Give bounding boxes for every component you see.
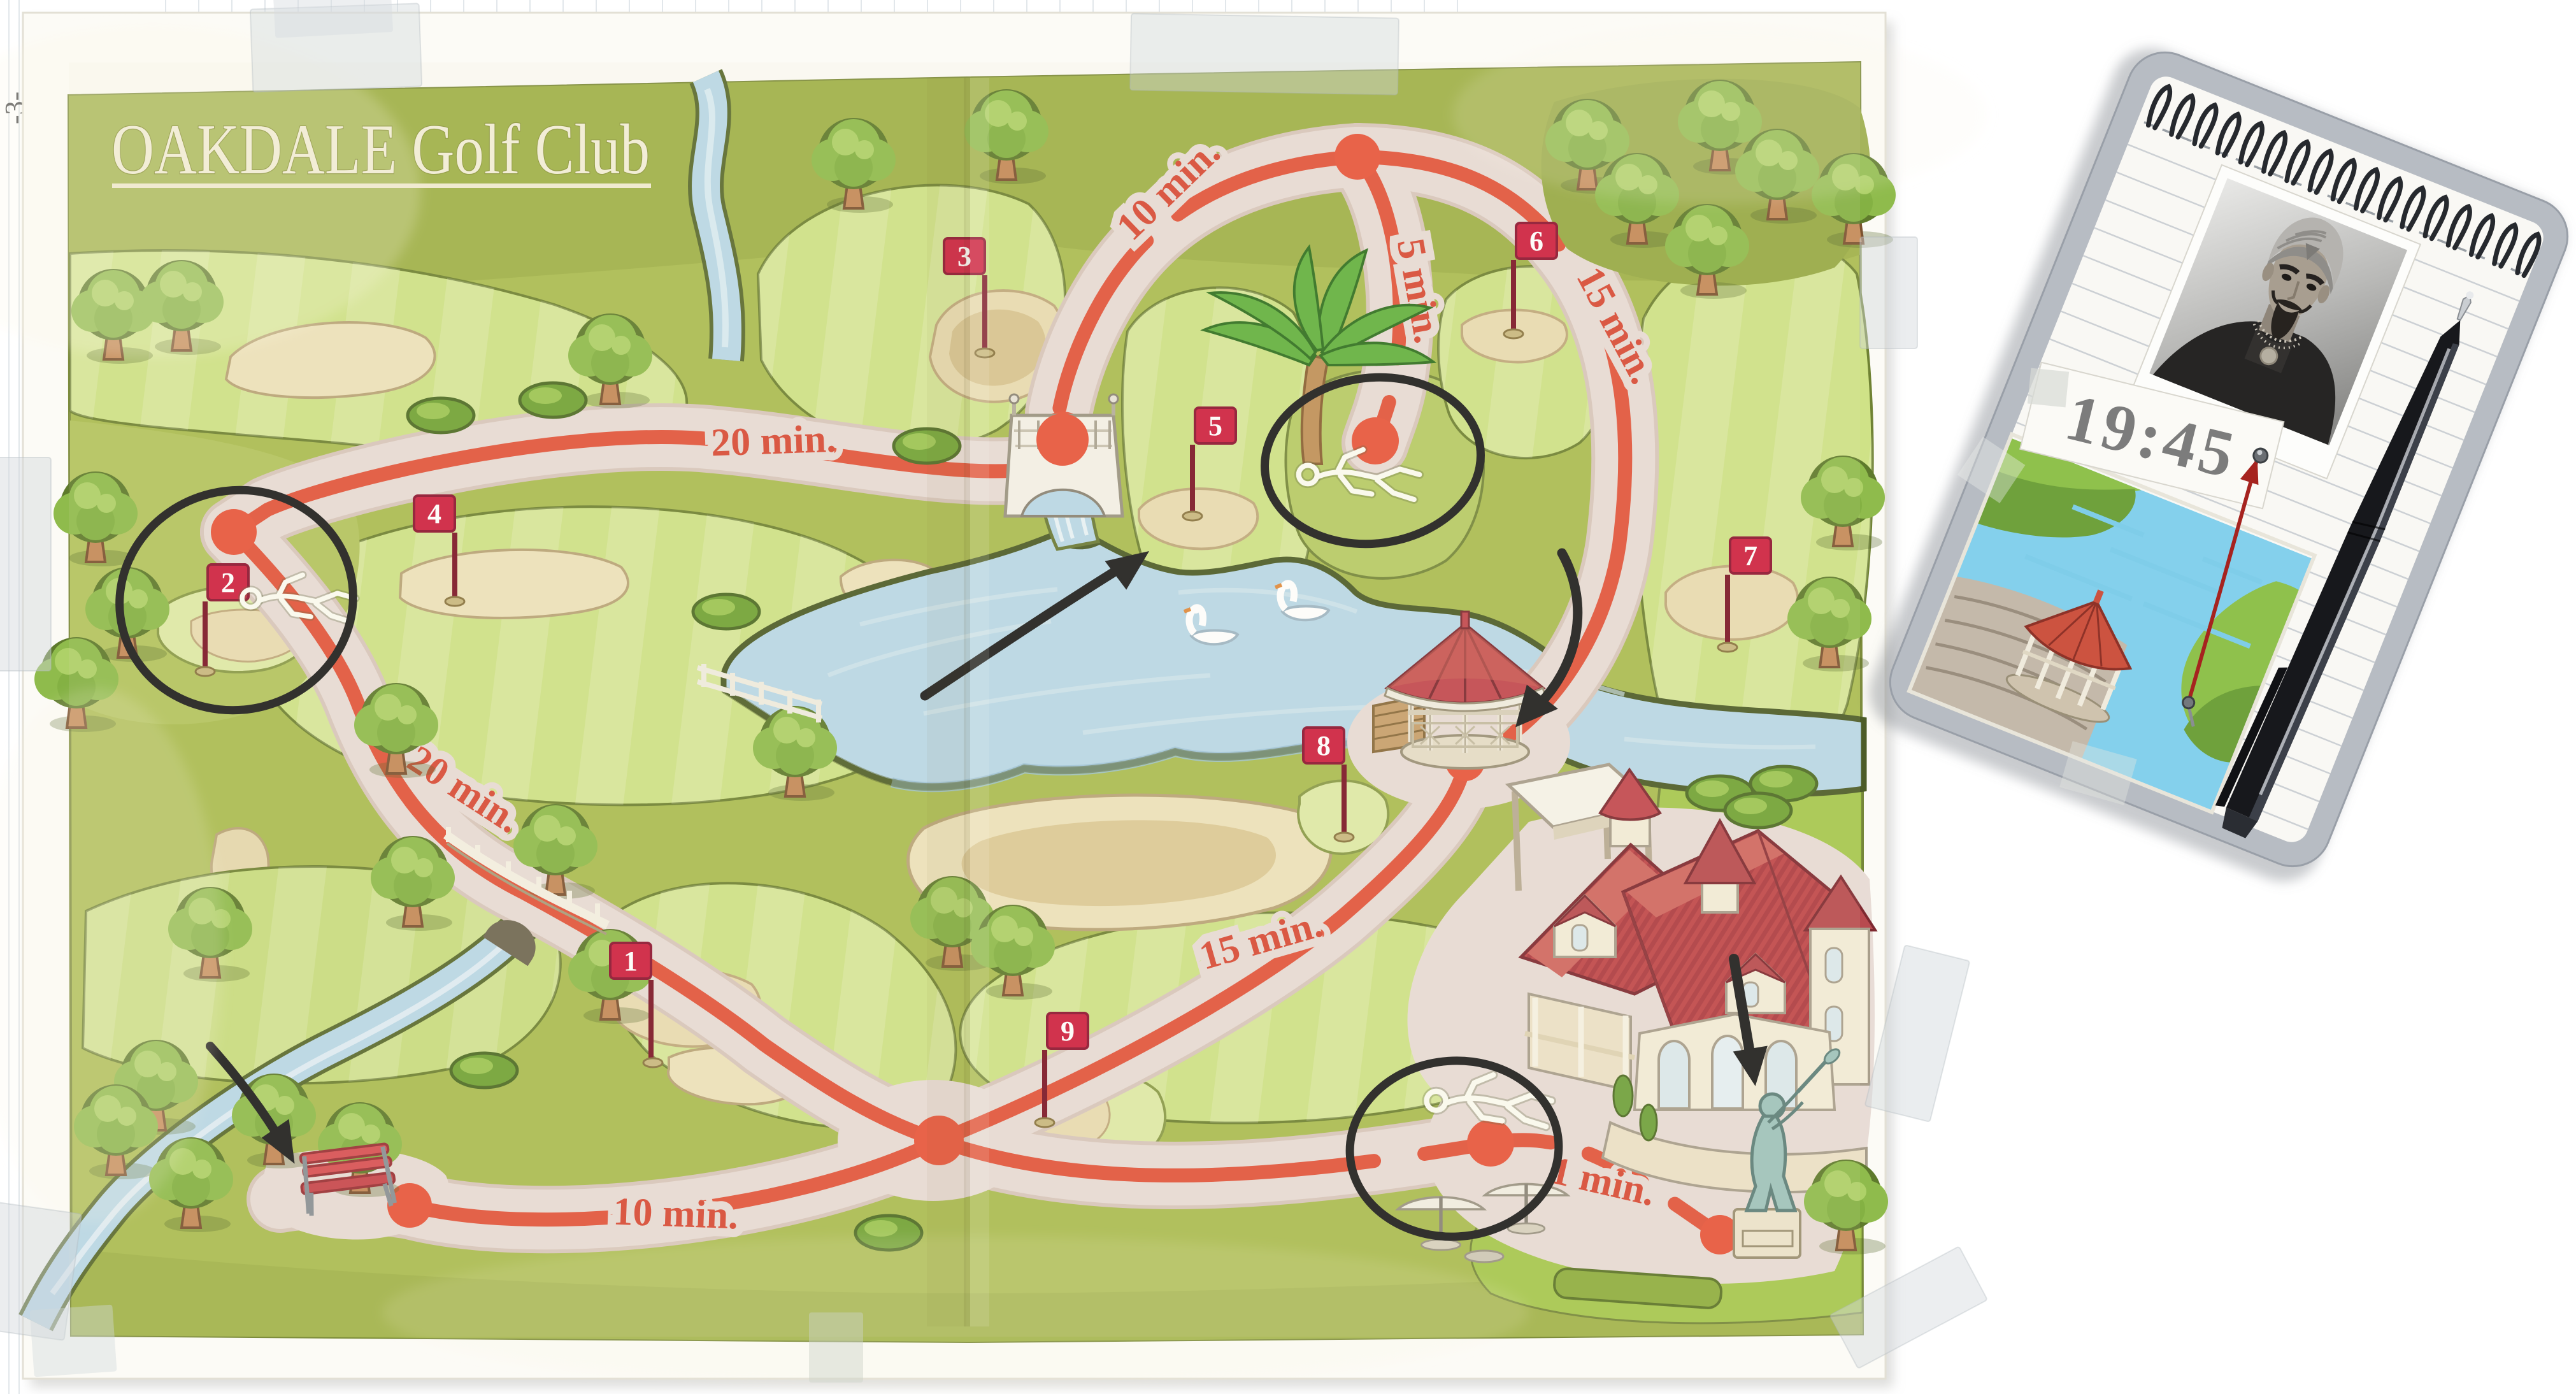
svg-text:OAKDALE Golf Club: OAKDALE Golf Club — [111, 110, 650, 189]
